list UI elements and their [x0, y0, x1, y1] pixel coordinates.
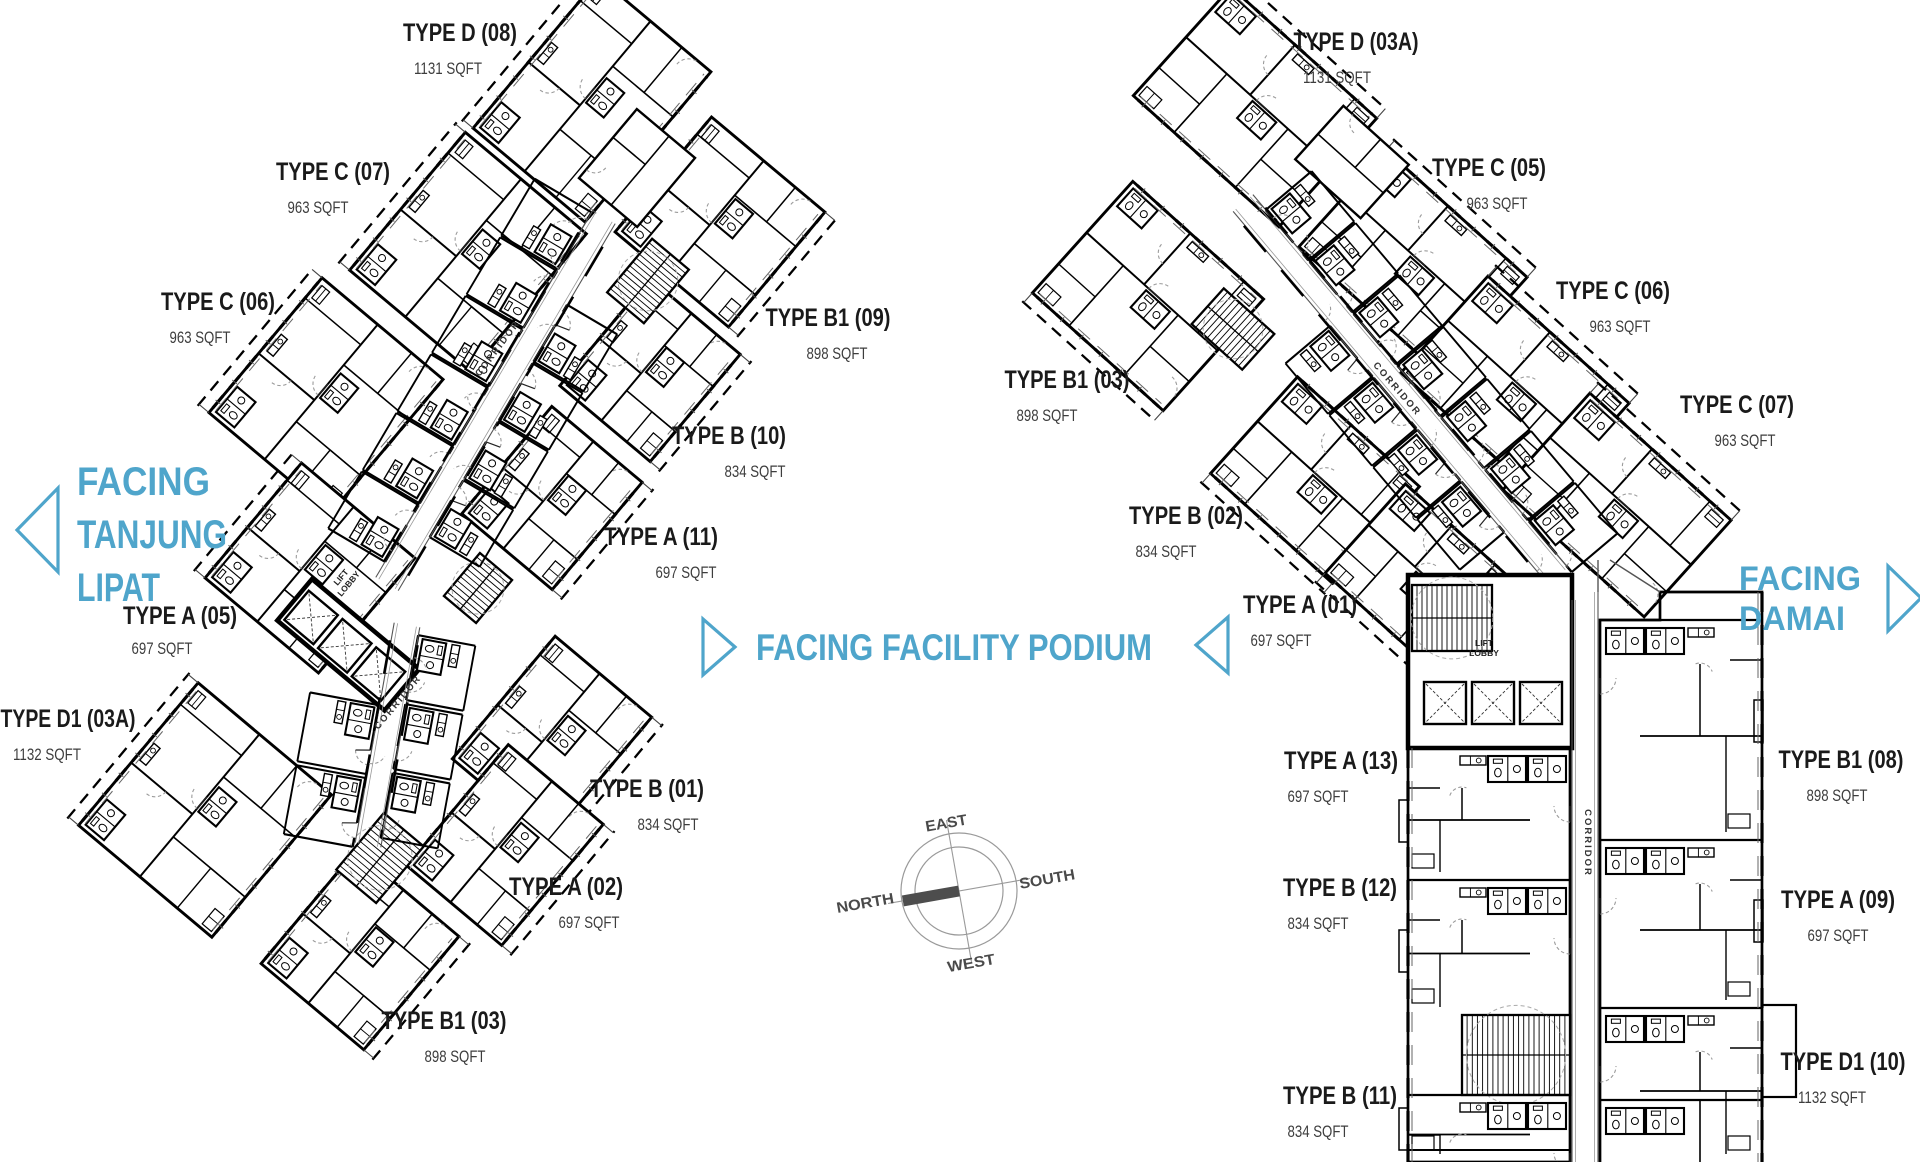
- svg-text:LIPAT: LIPAT: [77, 566, 160, 610]
- svg-text:TYPE C (05): TYPE C (05): [1432, 154, 1546, 182]
- svg-text:834 SQFT: 834 SQFT: [725, 463, 786, 481]
- svg-text:697 SQFT: 697 SQFT: [1808, 927, 1869, 945]
- svg-text:697 SQFT: 697 SQFT: [656, 564, 717, 582]
- svg-text:697 SQFT: 697 SQFT: [1251, 632, 1312, 650]
- svg-text:TYPE D (03A): TYPE D (03A): [1294, 28, 1419, 56]
- svg-text:963 SQFT: 963 SQFT: [1715, 432, 1776, 450]
- svg-text:963 SQFT: 963 SQFT: [170, 329, 231, 347]
- svg-text:TYPE B1 (03): TYPE B1 (03): [382, 1007, 507, 1035]
- svg-text:TYPE A (02): TYPE A (02): [509, 873, 623, 901]
- svg-text:834 SQFT: 834 SQFT: [1288, 1123, 1349, 1141]
- svg-text:LOBBY: LOBBY: [1469, 648, 1499, 658]
- svg-text:TYPE C (06): TYPE C (06): [1556, 277, 1670, 305]
- svg-text:TYPE B (02): TYPE B (02): [1129, 502, 1243, 530]
- svg-text:TYPE B (10): TYPE B (10): [672, 422, 786, 450]
- svg-text:FACING: FACING: [1739, 560, 1861, 598]
- svg-text:DAMAI: DAMAI: [1739, 600, 1845, 638]
- svg-text:697 SQFT: 697 SQFT: [559, 914, 620, 932]
- svg-text:TYPE D (08): TYPE D (08): [403, 19, 517, 47]
- svg-text:TYPE A (09): TYPE A (09): [1781, 886, 1895, 914]
- svg-text:834 SQFT: 834 SQFT: [1288, 915, 1349, 933]
- svg-text:834 SQFT: 834 SQFT: [638, 816, 699, 834]
- svg-text:CORRIDOR: CORRIDOR: [1582, 809, 1593, 877]
- svg-text:963 SQFT: 963 SQFT: [288, 199, 349, 217]
- svg-text:1132 SQFT: 1132 SQFT: [13, 746, 81, 764]
- svg-text:898 SQFT: 898 SQFT: [1807, 787, 1868, 805]
- svg-text:697 SQFT: 697 SQFT: [132, 640, 193, 658]
- svg-text:TYPE C (07): TYPE C (07): [276, 158, 390, 186]
- svg-text:834 SQFT: 834 SQFT: [1136, 543, 1197, 561]
- svg-text:TYPE A (13): TYPE A (13): [1284, 747, 1398, 775]
- svg-text:TYPE D1 (03A): TYPE D1 (03A): [1, 705, 136, 733]
- svg-text:1131 SQFT: 1131 SQFT: [1303, 69, 1371, 87]
- svg-text:898 SQFT: 898 SQFT: [807, 345, 868, 363]
- svg-text:697 SQFT: 697 SQFT: [1288, 788, 1349, 806]
- svg-text:TYPE B1 (08): TYPE B1 (08): [1779, 746, 1904, 774]
- svg-text:LIFT: LIFT: [1475, 638, 1494, 648]
- svg-text:TYPE B (01): TYPE B (01): [590, 775, 704, 803]
- svg-text:TYPE B1 (09): TYPE B1 (09): [766, 304, 891, 332]
- svg-text:TYPE B1 (03): TYPE B1 (03): [1005, 366, 1130, 394]
- svg-text:TYPE B (12): TYPE B (12): [1283, 874, 1397, 902]
- svg-text:TYPE C (07): TYPE C (07): [1680, 391, 1794, 419]
- svg-text:FACING FACILITY PODIUM: FACING FACILITY PODIUM: [756, 627, 1152, 668]
- svg-text:898 SQFT: 898 SQFT: [425, 1048, 486, 1066]
- svg-text:FACING: FACING: [77, 460, 210, 504]
- svg-text:898 SQFT: 898 SQFT: [1017, 407, 1078, 425]
- svg-text:TYPE C (06): TYPE C (06): [161, 288, 275, 316]
- svg-text:TYPE D1 (10): TYPE D1 (10): [1781, 1048, 1906, 1076]
- svg-text:TYPE B (11): TYPE B (11): [1283, 1082, 1397, 1110]
- svg-text:1132 SQFT: 1132 SQFT: [1798, 1089, 1866, 1107]
- svg-text:963 SQFT: 963 SQFT: [1590, 318, 1651, 336]
- svg-text:TYPE A (01): TYPE A (01): [1243, 591, 1357, 619]
- svg-text:TYPE A (11): TYPE A (11): [604, 523, 718, 551]
- svg-text:963 SQFT: 963 SQFT: [1467, 195, 1528, 213]
- svg-text:TANJUNG: TANJUNG: [77, 513, 227, 557]
- svg-text:1131 SQFT: 1131 SQFT: [414, 60, 482, 78]
